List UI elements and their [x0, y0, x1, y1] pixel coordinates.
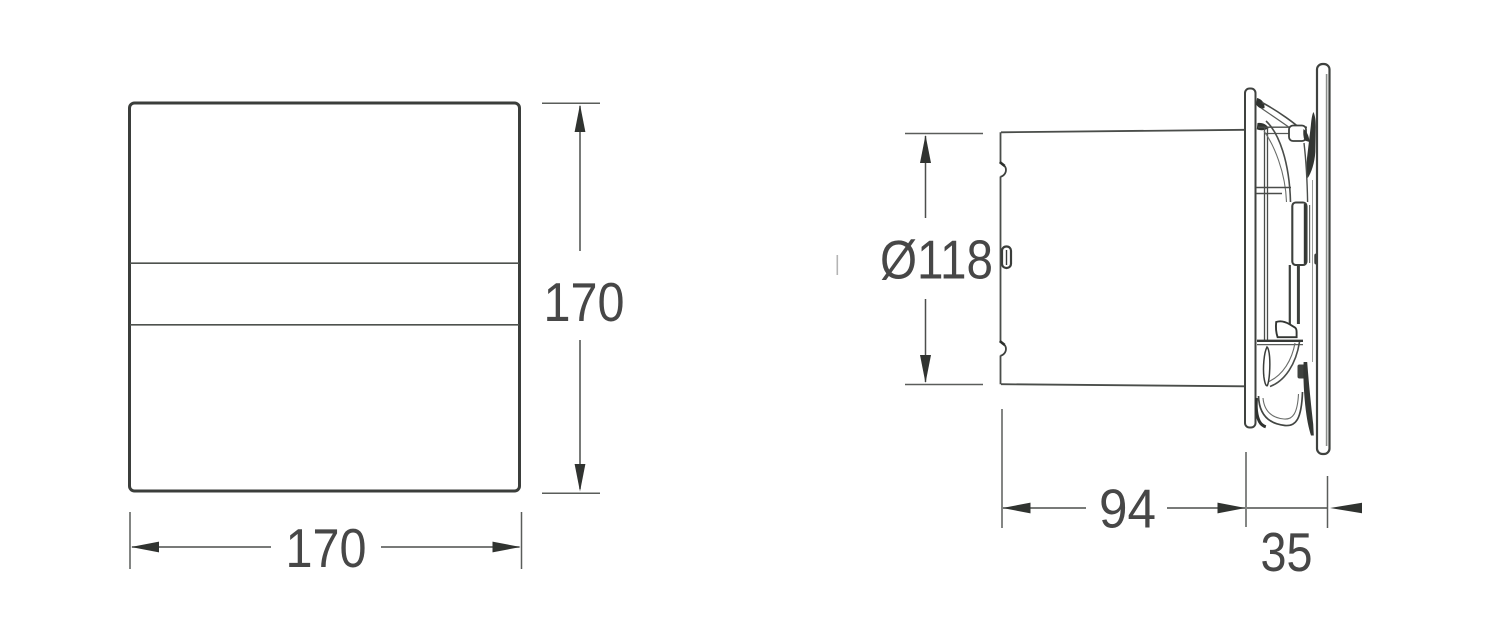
- svg-text:Ø118: Ø118: [880, 229, 993, 291]
- svg-text:35: 35: [1261, 521, 1313, 583]
- svg-text:170: 170: [544, 271, 625, 333]
- svg-text:170: 170: [286, 517, 367, 579]
- svg-text:94: 94: [1099, 478, 1156, 540]
